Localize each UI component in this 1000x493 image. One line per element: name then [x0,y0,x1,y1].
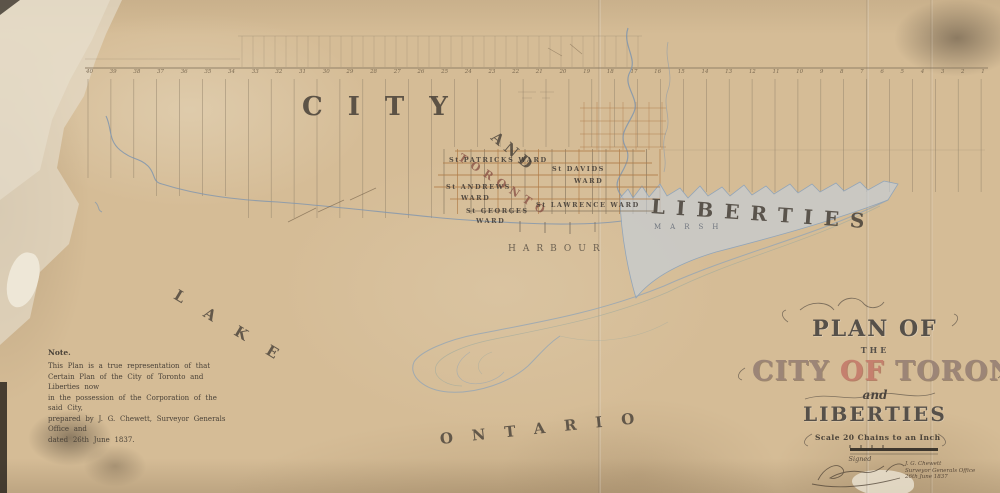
title-scale-text: Scale 20 Chains to an Inch [815,433,935,442]
lot-number: 38 [133,69,140,75]
lot-number: 22 [512,69,519,75]
label-city: CITY [302,92,473,122]
label-ward-st-patricks: St PATRICKS WARD [449,156,548,164]
title-word-of: OF [840,356,885,387]
lot-number: 5 [901,69,905,75]
title-word-toronto: TORONTO [895,356,1000,387]
label-harbour: HARBOUR [508,244,607,254]
lot-number: 39 [110,69,117,75]
title-liberties: LIBERTIES [800,402,950,426]
note-line: dated 26th June 1837. [48,435,233,446]
lot-number: 30 [323,69,330,75]
note-line: This Plan is a true representation of th… [48,361,233,372]
note-line: Certain Plan of the City of Toronto and … [48,372,233,393]
label-ward-st-davids-2: WARD [574,177,603,185]
note-heading: Note. [48,348,233,357]
lot-number: 27 [394,69,401,75]
lot-number: 7 [860,69,864,75]
lot-number: 3 [941,69,945,75]
title-and: and [830,388,920,402]
label-ward-st-lawrence: St LAWRENCE WARD [536,201,640,209]
lot-number: 18 [607,69,614,75]
title-signed: Signed [835,455,885,463]
label-ward-st-andrews: St ANDREWS [446,183,511,191]
scale-bar [850,445,938,454]
lot-number: 10 [796,69,803,75]
title-city-of-toronto: CITY OF TORONTO [752,356,1000,387]
map-canvas: 4039383736353433323130292827262524232221… [0,0,1000,493]
lot-number: 19 [583,69,590,75]
lot-number: 29 [346,69,353,75]
label-ward-st-andrews-2: WARD [461,194,490,202]
title-word-city: CITY [752,356,830,387]
note-block: Note. This Plan is a true representation… [48,348,233,445]
lot-number: 11 [772,69,779,75]
lot-number: 24 [465,69,472,75]
lot-number: 2 [961,69,965,75]
lot-number: 20 [559,69,566,75]
label-ward-st-georges: St GEORGES [466,207,529,215]
lot-number: 26 [417,69,424,75]
credit-block: J. G. Chewett Surveyor Generals Office 2… [905,461,985,481]
lot-number: 12 [749,69,756,75]
small-stream [664,42,670,172]
label-ward-st-georges-2: WARD [476,217,505,225]
lot-number: 6 [880,69,884,75]
lot-numbers-row: 4039383736353433323130292827262524232221… [86,69,985,75]
lot-number: 34 [228,69,235,75]
note-line: in the possession of the Corporation of … [48,393,233,414]
lot-number: 35 [204,69,211,75]
lot-number: 36 [181,69,188,75]
lot-number: 8 [840,69,844,75]
lot-number: 28 [370,69,377,75]
lot-number: 9 [820,69,824,75]
title-the: THE [830,345,920,355]
credit-date: 26th June 1837 [905,474,985,481]
lot-number: 37 [157,69,164,75]
title-plan-of: PLAN OF [790,316,960,342]
lot-number: 21 [536,69,543,75]
label-ward-st-davids: St DAVIDS [552,165,605,173]
note-line: prepared by J. G. Chewett, Surveyor Gene… [48,414,233,435]
lot-number: 17 [630,69,637,75]
lot-number: 25 [441,69,448,75]
lot-number: 40 [86,69,93,75]
signature-script [812,464,904,487]
lot-number: 4 [921,69,925,75]
lot-number: 23 [488,69,495,75]
lot-number: 16 [654,69,661,75]
lot-number: 31 [299,69,306,75]
lot-number: 32 [275,69,282,75]
lot-number: 15 [678,69,685,75]
label-marsh: MARSH [654,223,727,231]
lot-number: 1 [981,69,985,75]
lot-number: 13 [725,69,732,75]
lot-number: 14 [701,69,708,75]
lot-number: 33 [252,69,259,75]
